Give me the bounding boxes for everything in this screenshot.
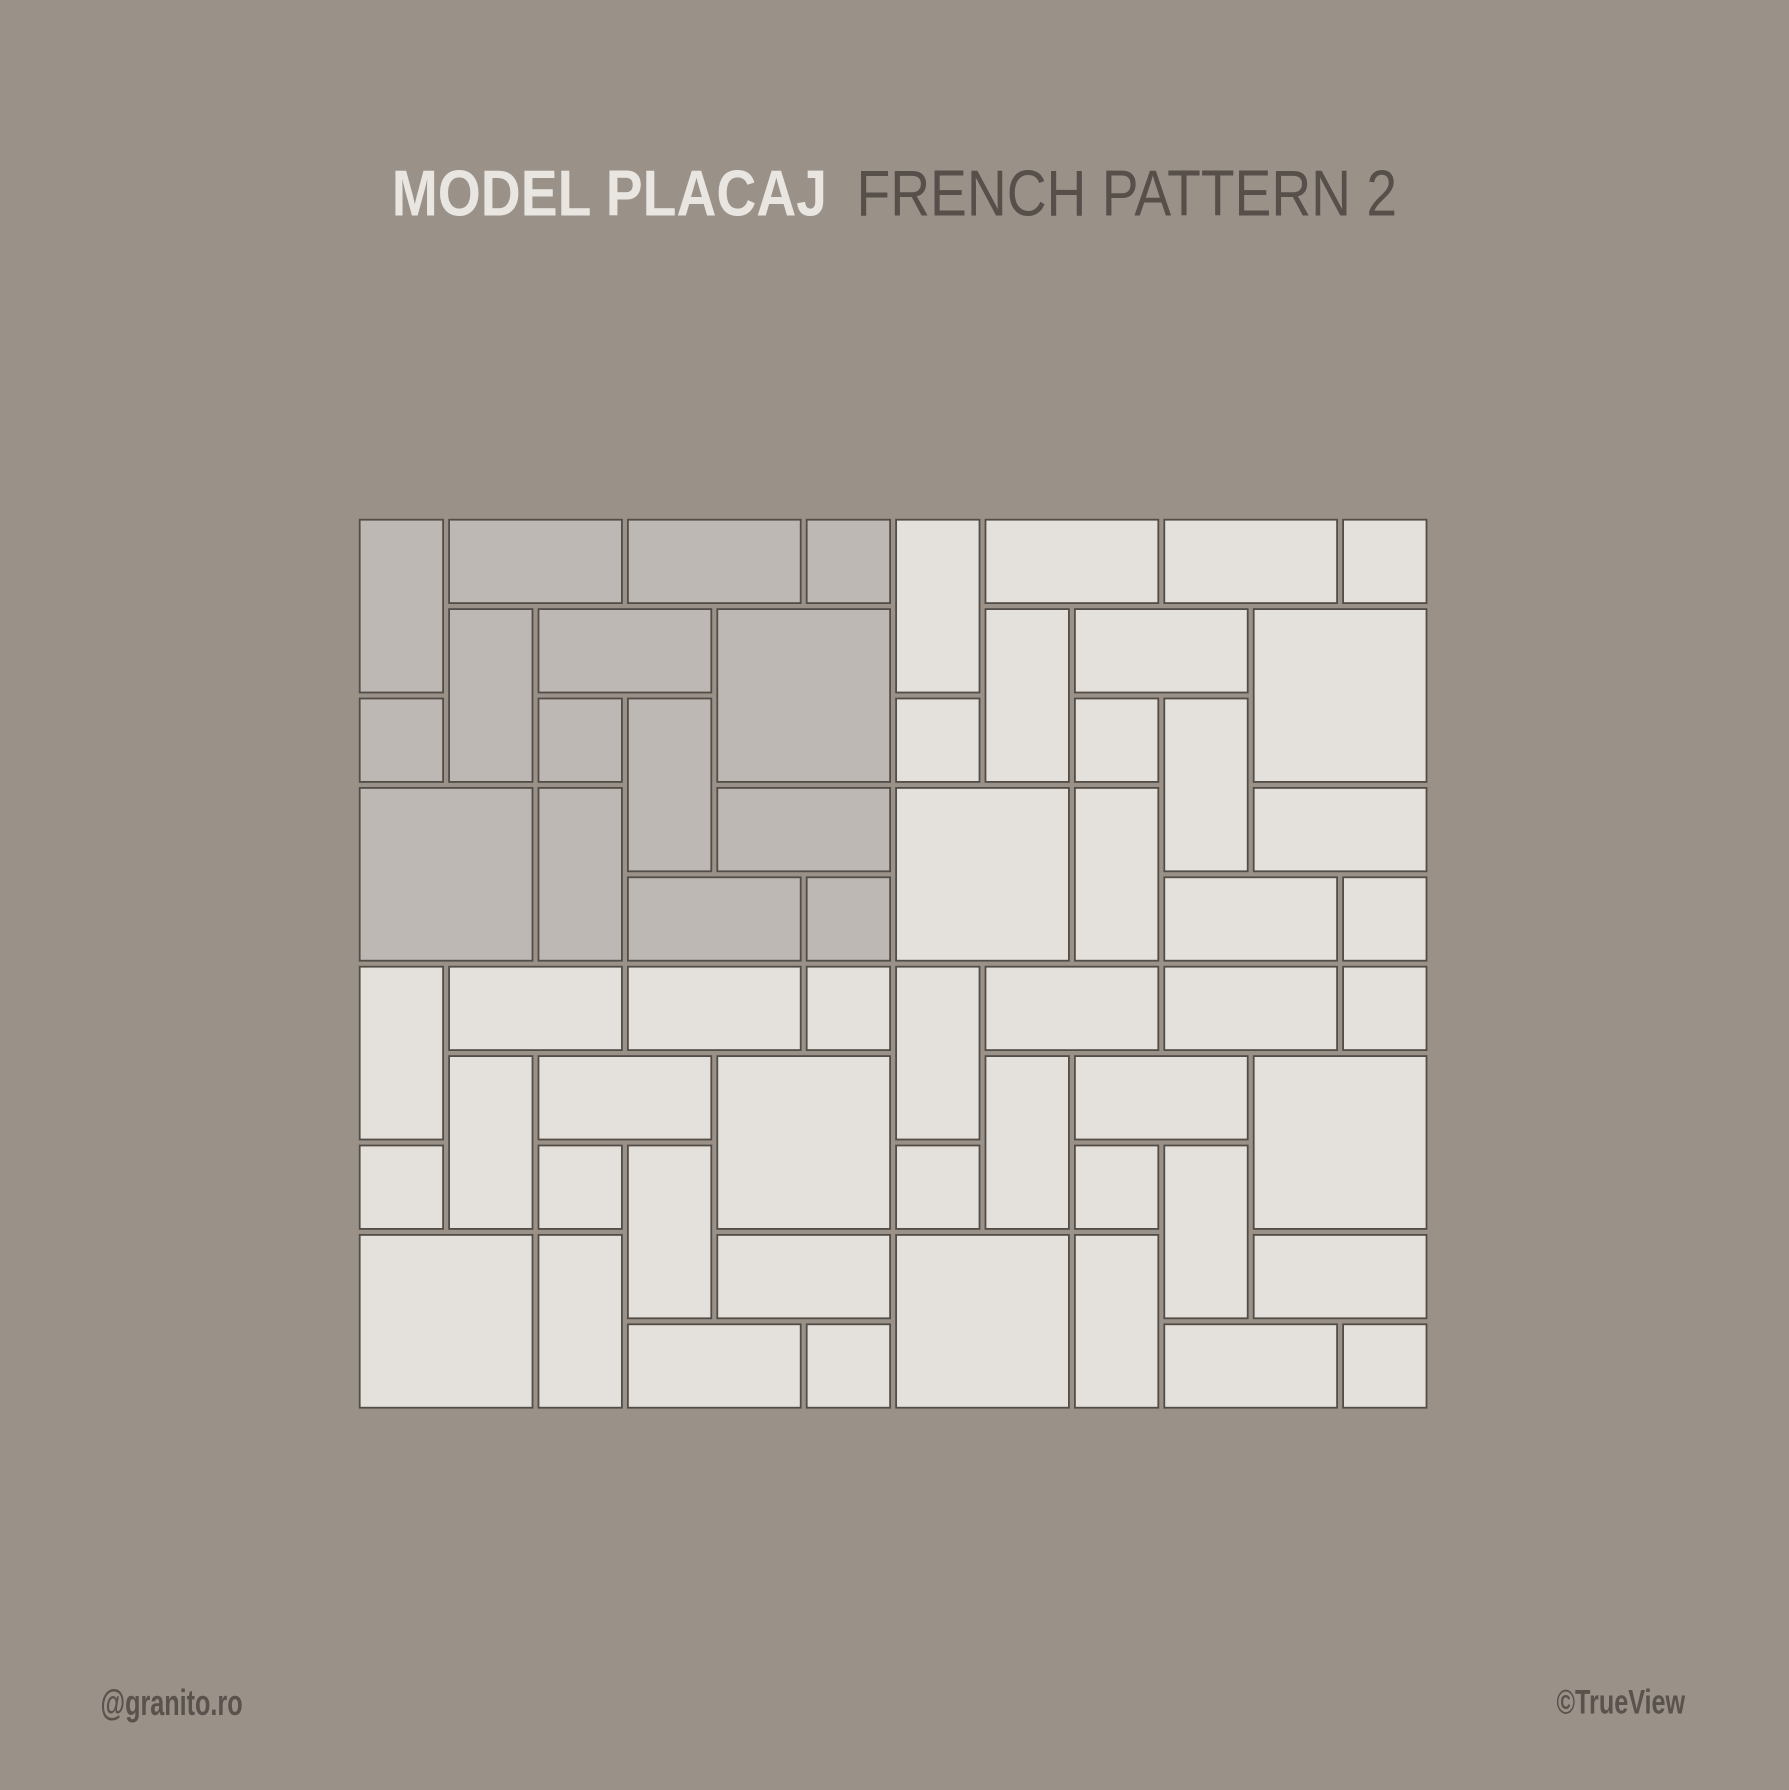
svg-text:@granito.ro: @granito.ro <box>101 1683 243 1724</box>
svg-text:©TrueView: ©TrueView <box>1557 1684 1686 1722</box>
svg-text:FRENCH PATTERN 2: FRENCH PATTERN 2 <box>857 156 1398 229</box>
svg-text:MODEL PLACAJ: MODEL PLACAJ <box>392 156 827 229</box>
